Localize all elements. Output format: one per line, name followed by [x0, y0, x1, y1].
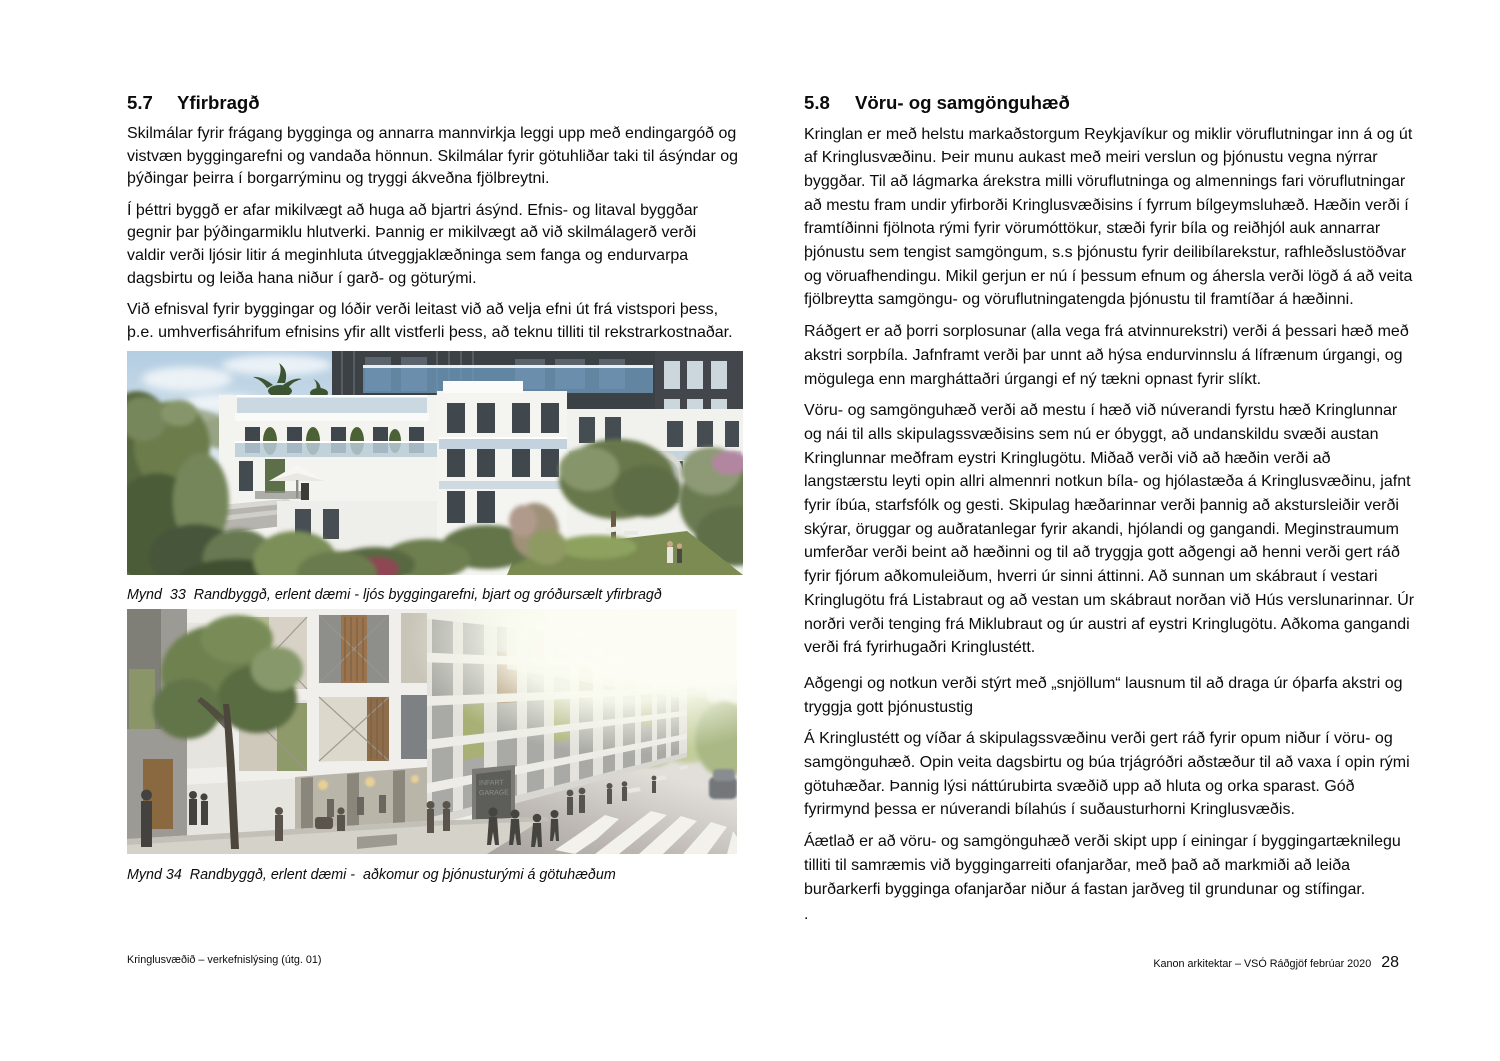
svg-text:INFART: INFART [479, 780, 505, 787]
svg-text:GARAGE: GARAGE [479, 789, 509, 797]
